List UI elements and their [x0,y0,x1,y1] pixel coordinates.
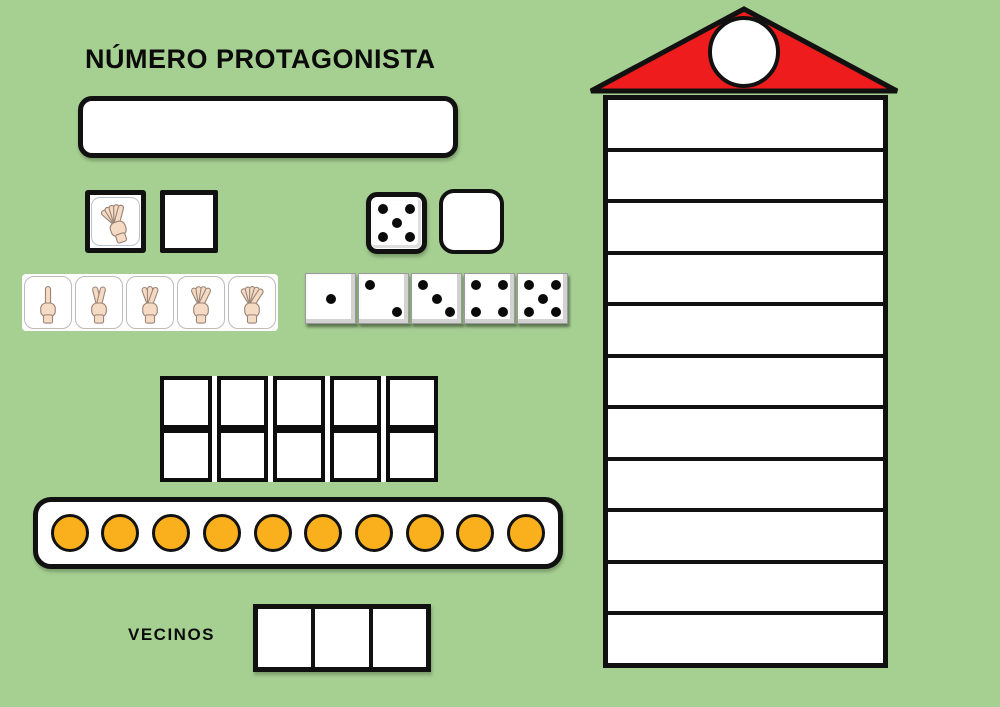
ten-frame-cell[interactable] [330,429,382,482]
vecinos-cell[interactable] [315,609,368,667]
die-pip [392,307,402,317]
building-floor[interactable] [608,152,883,200]
dice-answer-box[interactable] [439,189,504,254]
die-card-3[interactable] [411,273,462,324]
building-roof [586,2,902,96]
dice-cards-row [305,273,568,324]
hand-card-3[interactable] [126,276,174,329]
die-pip [498,307,508,317]
die-pip [445,307,455,317]
die-pip [378,204,388,214]
ten-frame-cell[interactable] [160,429,212,482]
die-pip [471,280,481,290]
building-floor[interactable] [608,203,883,251]
counter-circle [355,514,393,552]
die-pip [326,294,336,304]
die-five-icon [372,199,421,248]
ten-frame-cell[interactable] [330,376,382,429]
vecinos-row [253,604,431,672]
building-floor[interactable] [608,100,883,148]
counter-strip [33,497,563,569]
die-pip [538,294,548,304]
counter-circle [507,514,545,552]
vecinos-cell[interactable] [258,609,311,667]
hand-3-fingers-icon [129,282,171,324]
page-title: NÚMERO PROTAGONISTA [85,44,436,75]
hand-5-fingers-icon [88,194,143,249]
hand-2-fingers-icon [78,282,120,324]
die-card-5[interactable] [517,273,568,324]
hand-cards-row [22,274,278,331]
die-pip [365,280,375,290]
ten-frame-cell[interactable] [217,429,269,482]
die-pip [524,307,534,317]
building-body [603,95,888,668]
die-card-1[interactable] [305,273,356,324]
building-floor[interactable] [608,461,883,509]
ten-frame [160,376,438,482]
die-pip [551,280,561,290]
counter-circle [406,514,444,552]
dice-prompt-box [366,192,427,254]
building-floor[interactable] [608,564,883,612]
building-floor[interactable] [608,615,883,663]
ten-frame-cell[interactable] [386,429,438,482]
ten-frame-cell[interactable] [160,376,212,429]
die-pip [551,307,561,317]
die-pip [432,294,442,304]
counter-circle [456,514,494,552]
ten-frame-cell[interactable] [273,429,325,482]
die-pip [524,280,534,290]
hand-1-fingers-icon [27,282,69,324]
die-pip [405,204,415,214]
ten-frame-cell[interactable] [273,376,325,429]
hand-prompt-box [85,190,146,253]
die-pip [471,307,481,317]
hand-card-4[interactable] [177,276,225,329]
vecinos-cell[interactable] [373,609,426,667]
building-floor[interactable] [608,409,883,457]
worksheet-canvas: NÚMERO PROTAGONISTA VECINOS [0,0,1000,707]
counter-circle [304,514,342,552]
hand-card-1[interactable] [24,276,72,329]
building-floor[interactable] [608,306,883,354]
hand-card-2[interactable] [75,276,123,329]
vecinos-label: VECINOS [128,625,215,645]
building-floor[interactable] [608,358,883,406]
counter-circle [101,514,139,552]
roof-circle[interactable] [710,18,778,86]
building-floor[interactable] [608,512,883,560]
hand-card-5[interactable] [228,276,276,329]
counter-circle [152,514,190,552]
hand-5-fingers-icon [231,282,273,324]
die-card-4[interactable] [464,273,515,324]
hand-answer-box[interactable] [160,190,218,253]
protagonist-answer-box[interactable] [78,96,458,158]
die-pip [392,218,402,228]
counter-circle [51,514,89,552]
ten-frame-cell[interactable] [386,376,438,429]
counter-circle [254,514,292,552]
counter-circle [203,514,241,552]
hand-4-fingers-icon [180,282,222,324]
die-pip [405,232,415,242]
die-pip [418,280,428,290]
die-card-2[interactable] [358,273,409,324]
die-pip [378,232,388,242]
building-floor[interactable] [608,255,883,303]
die-pip [498,280,508,290]
five-finger-hand-icon [91,197,140,246]
ten-frame-cell[interactable] [217,376,269,429]
